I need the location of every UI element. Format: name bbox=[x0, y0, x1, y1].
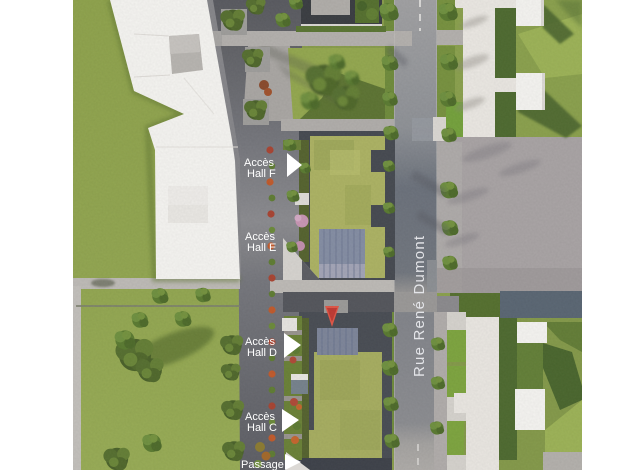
svg-text:Hall C: Hall C bbox=[247, 422, 277, 434]
svg-text:Hall E: Hall E bbox=[247, 242, 276, 254]
svg-text:Rue René Dumont: Rue René Dumont bbox=[411, 235, 428, 377]
svg-text:Passage: Passage bbox=[241, 459, 284, 470]
svg-text:Hall F: Hall F bbox=[247, 168, 276, 180]
svg-text:Hall D: Hall D bbox=[247, 347, 277, 359]
